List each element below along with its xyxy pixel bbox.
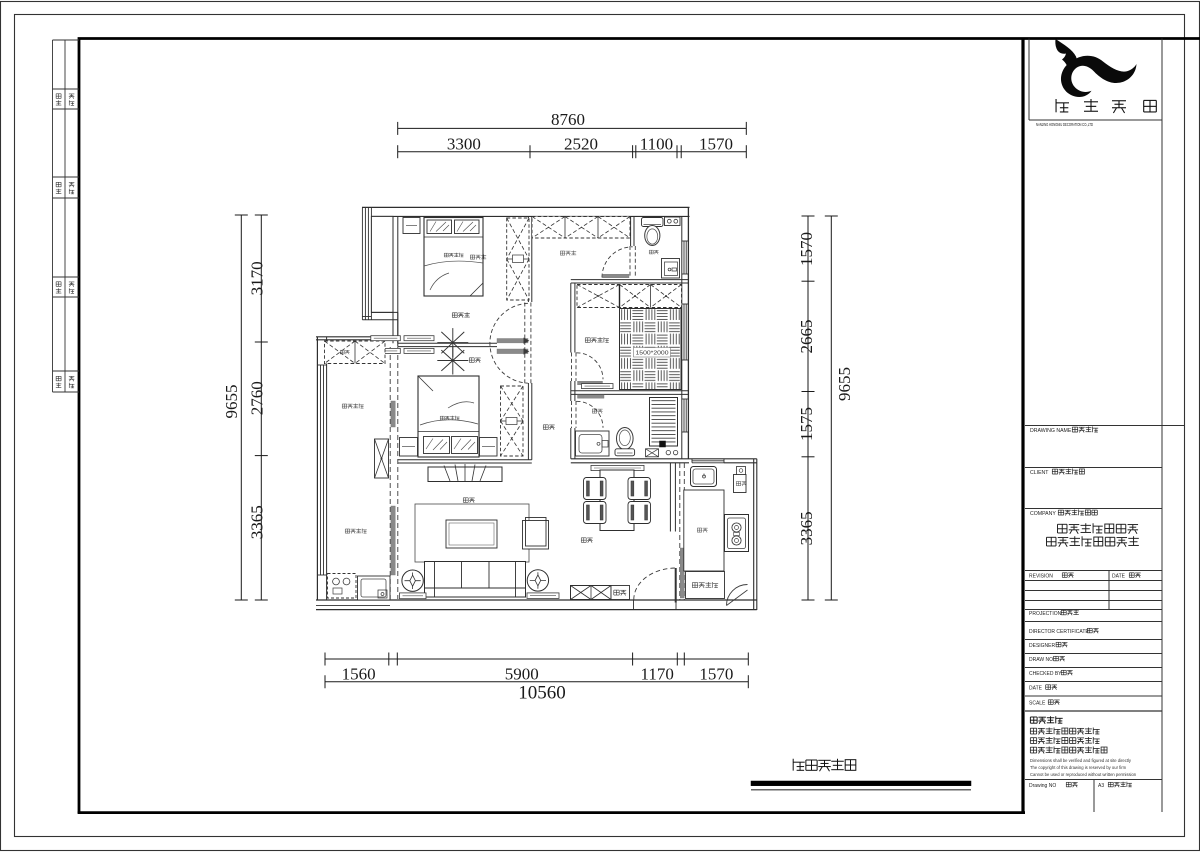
svg-text:3365: 3365 <box>248 505 267 539</box>
svg-text:1170: 1170 <box>641 665 674 684</box>
svg-text:COMPANY: COMPANY <box>1030 511 1056 517</box>
svg-text:CLIENT: CLIENT <box>1030 470 1049 476</box>
svg-text:9655: 9655 <box>222 385 241 419</box>
svg-text:Cannot be used or reproduced w: Cannot be used or reproduced without wri… <box>1030 772 1137 777</box>
svg-text:3365: 3365 <box>797 511 816 545</box>
svg-text:DATE: DATE <box>1112 574 1126 580</box>
svg-text:8760: 8760 <box>551 110 585 129</box>
svg-text:2665: 2665 <box>797 320 816 354</box>
svg-text:9655: 9655 <box>835 367 854 401</box>
svg-text:3300: 3300 <box>447 135 481 154</box>
svg-text:Dimensions shall be verified a: Dimensions shall be verified and figured… <box>1030 758 1132 763</box>
svg-text:3170: 3170 <box>248 261 267 295</box>
svg-text:1100: 1100 <box>640 135 673 154</box>
svg-text:DATE: DATE <box>1029 686 1043 692</box>
svg-text:1500*2000: 1500*2000 <box>636 350 669 356</box>
svg-text:A3: A3 <box>1098 783 1104 789</box>
svg-text:Drawing NO: Drawing NO <box>1029 783 1056 789</box>
svg-text:PROJECTION: PROJECTION <box>1029 611 1062 617</box>
svg-text:DIRECTOR CERTIFICATE: DIRECTOR CERTIFICATE <box>1029 629 1089 635</box>
svg-text:2760: 2760 <box>248 381 267 415</box>
svg-text:DESIGNER: DESIGNER <box>1029 643 1056 649</box>
svg-text:1570: 1570 <box>797 232 816 266</box>
svg-text:5900: 5900 <box>505 665 539 684</box>
svg-text:The copyright of this drawing: The copyright of this drawing is reserve… <box>1030 765 1127 770</box>
svg-text:1570: 1570 <box>699 665 733 684</box>
svg-text:REVISION: REVISION <box>1029 574 1053 580</box>
svg-text:NANJING HONGNIU DECORATION CO.: NANJING HONGNIU DECORATION CO.,LTD <box>1036 122 1093 128</box>
svg-text:CHECKED BY: CHECKED BY <box>1029 671 1062 677</box>
svg-text:10560: 10560 <box>518 683 566 704</box>
svg-text:1570: 1570 <box>699 135 733 154</box>
svg-text:1575: 1575 <box>797 407 816 441</box>
svg-text:SCALE: SCALE <box>1029 701 1046 707</box>
svg-text:1560: 1560 <box>342 665 376 684</box>
svg-text:2520: 2520 <box>564 135 598 154</box>
svg-text:DRAW NO: DRAW NO <box>1029 657 1053 663</box>
svg-text:DRAWING NAME: DRAWING NAME <box>1030 428 1072 434</box>
